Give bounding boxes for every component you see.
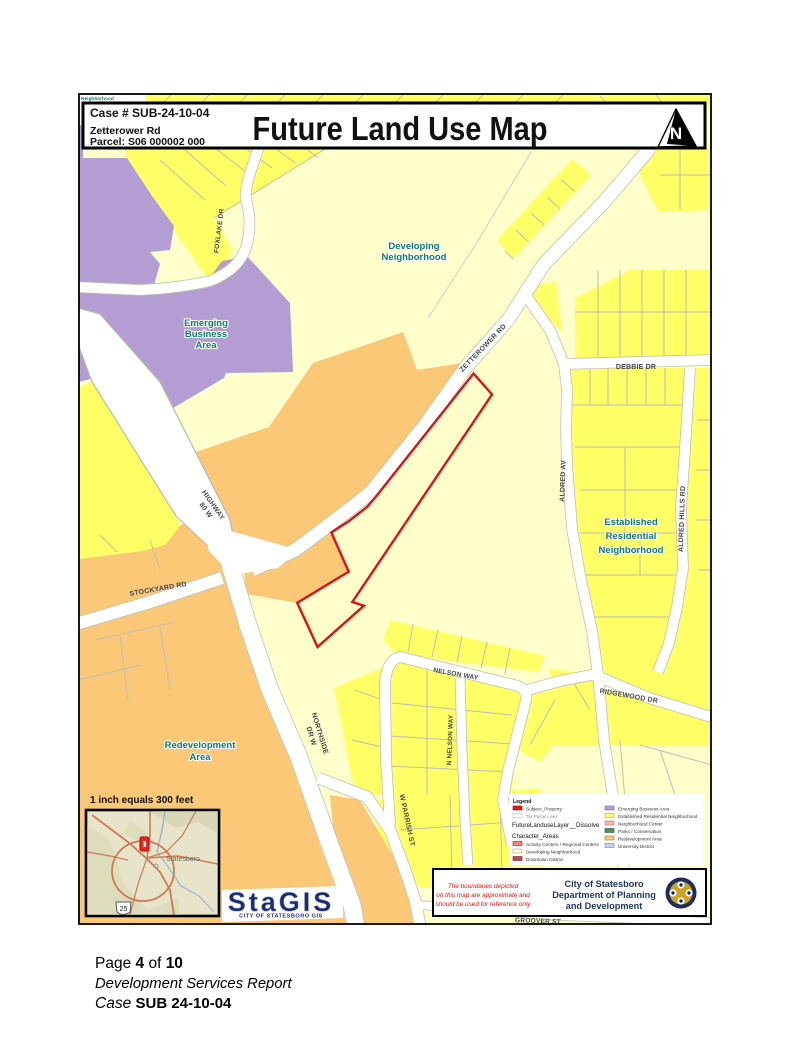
svg-text:Parks / Conservation: Parks / Conservation <box>618 829 662 834</box>
svg-text:Neighborhood Center: Neighborhood Center <box>618 822 663 827</box>
svg-text:FutureLanduseLayer__Dissolve: FutureLanduseLayer__Dissolve <box>512 822 600 829</box>
svg-text:Area: Area <box>189 752 211 763</box>
svg-text:Established: Established <box>604 517 658 528</box>
svg-text:Residential: Residential <box>606 531 657 542</box>
svg-text:University District: University District <box>618 844 655 849</box>
svg-text:and Development: and Development <box>566 901 643 911</box>
svg-text:Legend: Legend <box>513 799 531 805</box>
svg-text:Emerging Business Area: Emerging Business Area <box>618 807 670 812</box>
svg-text:StaGIS: StaGIS <box>228 887 335 917</box>
svg-text:Future Land Use Map: Future Land Use Map <box>253 110 548 147</box>
svg-text:Development Services Report: Development Services Report <box>95 976 292 992</box>
svg-text:N: N <box>670 124 682 143</box>
svg-text:Activity Centers / Regional Ce: Activity Centers / Regional Centers <box>526 842 599 847</box>
svg-text:1 inch equals 300 feet: 1 inch equals 300 feet <box>90 795 194 806</box>
svg-text:Downtown District: Downtown District <box>526 857 564 862</box>
svg-text:25: 25 <box>120 906 128 913</box>
svg-text:Case # SUB-24-10-04: Case # SUB-24-10-04 <box>90 106 210 120</box>
svg-text:CITY OF STATESBORO GIS: CITY OF STATESBORO GIS <box>239 914 323 920</box>
svg-text:Emerging: Emerging <box>184 318 228 329</box>
svg-text:Case SUB 24-10-04: Case SUB 24-10-04 <box>95 995 232 1012</box>
svg-text:Neighborhood: Neighborhood <box>599 545 664 556</box>
svg-text:Department of Planning: Department of Planning <box>552 890 656 900</box>
svg-text:Developing: Developing <box>388 241 439 252</box>
svg-text:Business: Business <box>185 329 227 340</box>
svg-text:Redevelopment: Redevelopment <box>165 740 237 751</box>
svg-text:Neighborhood: Neighborhood <box>81 96 114 102</box>
svg-text:ALDRED AV: ALDRED AV <box>559 460 567 502</box>
svg-text:Neighborhood: Neighborhood <box>382 252 447 263</box>
svg-text:Redevelopment Area: Redevelopment Area <box>618 837 662 842</box>
svg-text:Established Residential Neighb: Established Residential Neighborhood <box>618 814 698 819</box>
svg-text:Tax Parcel Lines: Tax Parcel Lines <box>526 814 558 819</box>
svg-text:on this map are approximate an: on this map are approximate and <box>436 892 530 899</box>
svg-text:Page 4 of 10: Page 4 of 10 <box>95 955 183 972</box>
svg-text:Statesboro: Statesboro <box>166 856 200 863</box>
svg-text:Parcel: S06 000002 000: Parcel: S06 000002 000 <box>90 136 205 148</box>
svg-text:The boundaries depicted: The boundaries depicted <box>448 883 519 890</box>
svg-text:should be used for reference o: should be used for reference only <box>436 901 532 908</box>
svg-text:DEBBIE DR: DEBBIE DR <box>616 364 656 371</box>
svg-text:City of Statesboro: City of Statesboro <box>564 879 644 889</box>
svg-text:Developing Neighborhood: Developing Neighborhood <box>526 850 581 855</box>
svg-text:Subject_Property: Subject_Property <box>526 807 563 812</box>
svg-text:Character_Areas: Character_Areas <box>512 833 559 840</box>
svg-text:Area: Area <box>195 340 217 351</box>
